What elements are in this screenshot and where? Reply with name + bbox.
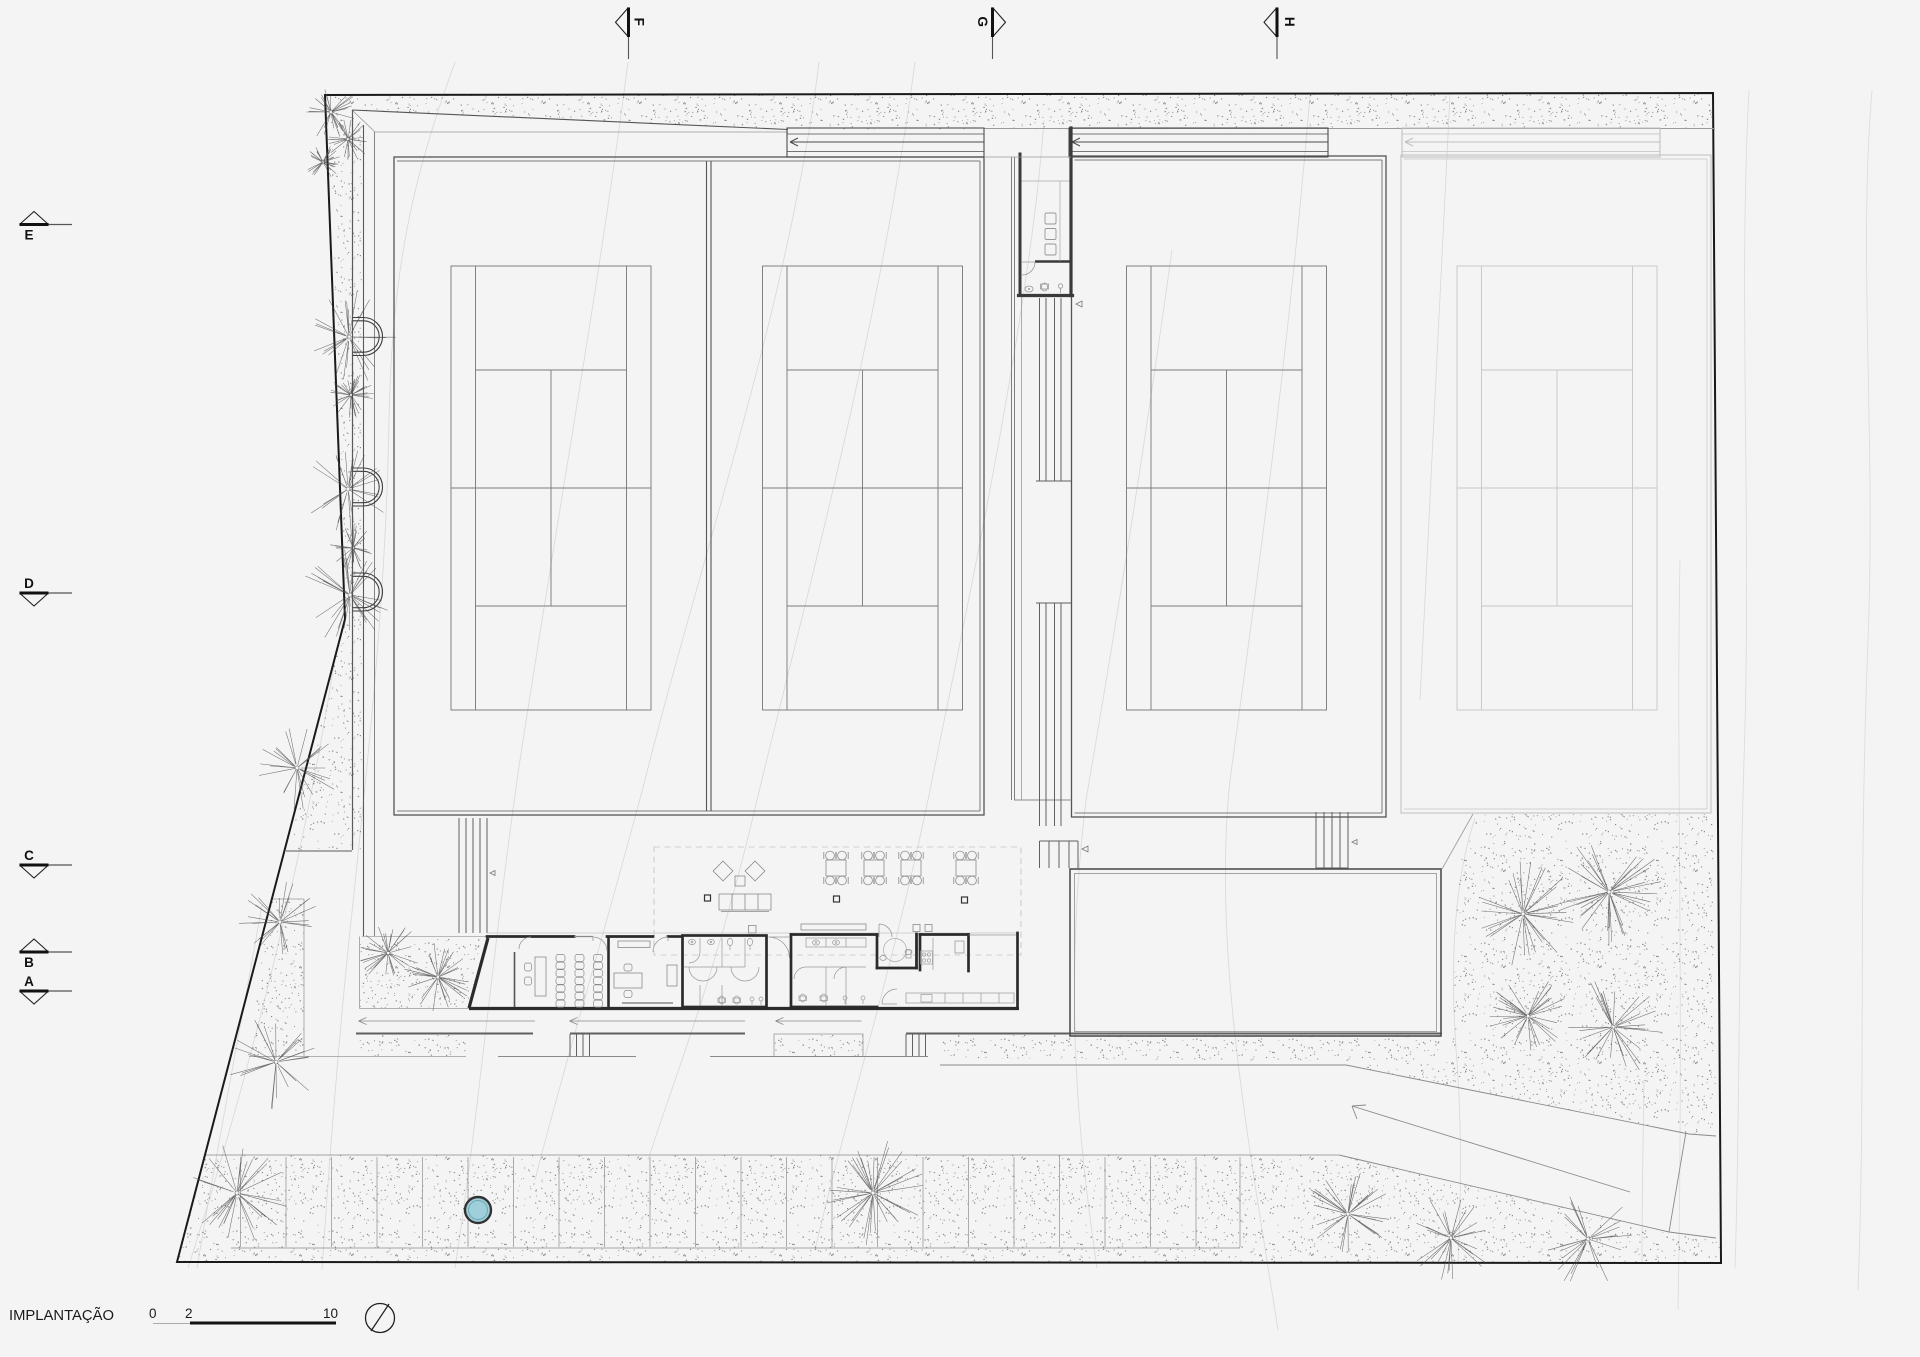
svg-text:IMPLANTAÇÃO: IMPLANTAÇÃO: [9, 1307, 114, 1324]
svg-text:10: 10: [323, 1306, 338, 1321]
svg-text:C: C: [24, 848, 34, 863]
svg-text:A: A: [24, 974, 34, 989]
svg-text:2: 2: [185, 1306, 193, 1321]
svg-text:B: B: [24, 955, 34, 970]
svg-text:0: 0: [149, 1306, 157, 1321]
svg-text:G: G: [975, 16, 990, 27]
svg-text:E: E: [24, 228, 33, 243]
svg-text:F: F: [632, 18, 647, 26]
svg-text:D: D: [24, 576, 34, 591]
svg-text:H: H: [1282, 17, 1297, 27]
